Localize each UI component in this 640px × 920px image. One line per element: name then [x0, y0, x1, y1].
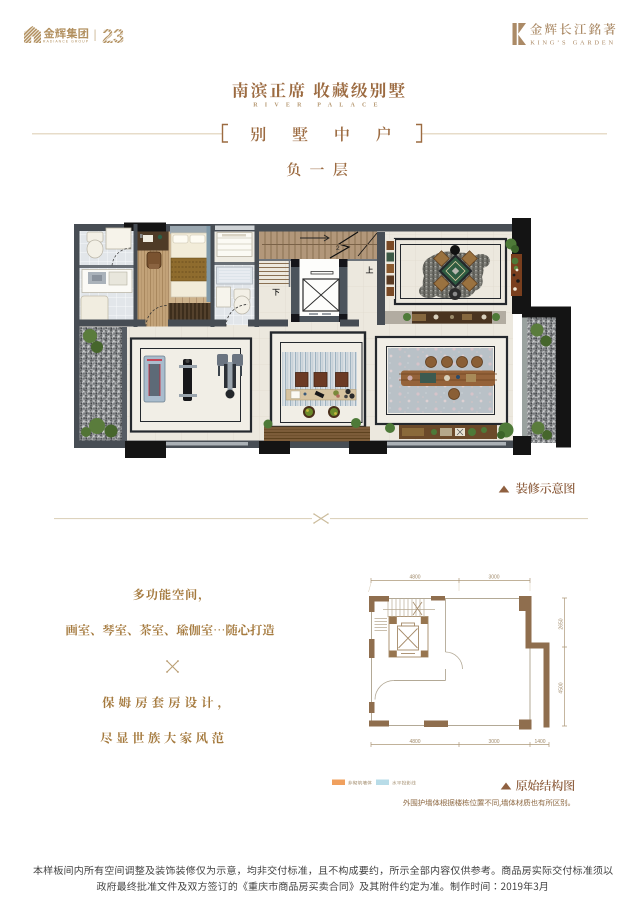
svg-text:23: 23: [102, 25, 124, 48]
svg-text:2650: 2650: [559, 618, 565, 629]
svg-text:KING’S GARDEN: KING’S GARDEN: [530, 40, 616, 47]
svg-text:3000: 3000: [488, 739, 499, 745]
svg-text:3000: 3000: [488, 575, 499, 581]
svg-text:4800: 4800: [409, 739, 420, 745]
svg-text:RADIANCE GROUP: RADIANCE GROUP: [43, 39, 89, 43]
svg-text:4800: 4800: [409, 575, 420, 581]
svg-text:RIVER PALACE: RIVER PALACE: [253, 103, 384, 109]
svg-text:2: 2: [336, 245, 340, 252]
svg-text:4500: 4500: [559, 682, 565, 693]
svg-text:1400: 1400: [534, 739, 545, 745]
